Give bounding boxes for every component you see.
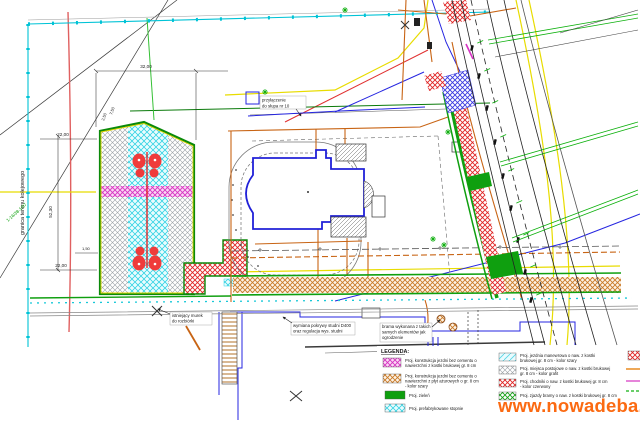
callout-gate-line2: samych elementów jak	[382, 330, 426, 335]
legend-item: gr. 8 cm - kolor grafit	[520, 371, 559, 376]
legend-item: brukowej gr. 8 cm - kolor szary	[520, 358, 578, 363]
legend-title: LEGENDA:	[381, 349, 409, 355]
parking-drive-lane	[128, 114, 168, 296]
legend-item: nawierzchni z kostki brukowej gr. 8 cm	[405, 363, 477, 368]
callout-gate-line3: ogrodzenie	[382, 335, 404, 340]
callout-wall-line1: istniejący murek	[172, 313, 204, 318]
site-plan-drawing: granica terenu kolejowego 1-16/38-1/07 3…	[0, 0, 640, 421]
legend-item: - kolor czerwony	[520, 384, 551, 389]
legend-item: Proj. prefabrykowane stopnie	[409, 406, 464, 411]
callout-pole-line1: przyłączenie	[262, 98, 286, 103]
dim-left-upper: 22,00	[57, 132, 69, 137]
dim-left-total: 52,30	[48, 206, 53, 218]
site-plan: granica terenu kolejowego 1-16/38-1/07 3…	[0, 0, 640, 421]
dim-top-width: 32,00	[140, 64, 152, 69]
callout-gate: brama wykonana z takich samych elementów…	[380, 320, 440, 342]
legend-swatch-kostka-magenta	[383, 358, 401, 367]
legend-swatch-steps-cyan	[385, 404, 405, 412]
dim-stall-a: 1,50	[82, 246, 91, 251]
legend-swatch-jezdnia-cyan	[499, 353, 516, 361]
callout-well-line2: oraz regulacja wys. studni	[293, 329, 342, 334]
parking-area	[100, 114, 194, 296]
legend-swatch-postojowe-gray	[499, 366, 516, 374]
legend-swatch-green	[385, 391, 405, 399]
legend-swatch-cutoff-red	[628, 351, 640, 360]
driveway-surface	[233, 277, 621, 293]
legend-item: - kolor szary	[405, 384, 429, 389]
building-center-mark	[307, 191, 309, 193]
watermark: www.nowadeba.pl	[497, 395, 640, 416]
parking-stall-row-left	[100, 118, 128, 296]
callout-well-line1: wymiana pokrywy studni D400	[293, 323, 352, 328]
legend-swatch-azur-orange	[383, 374, 401, 383]
legend-item: Proj. zieleń	[409, 393, 430, 398]
callout-gate-line1: brama wykonana z takich	[382, 324, 431, 329]
ladder-wall	[222, 312, 237, 384]
callout-pole-line2: do słupa nr 10	[262, 104, 290, 109]
legend-swatch-chodnik-red	[499, 379, 516, 387]
dim-left-lower: 22,00	[55, 263, 67, 268]
callout-wall-line2: do rozbiórki	[172, 319, 194, 324]
